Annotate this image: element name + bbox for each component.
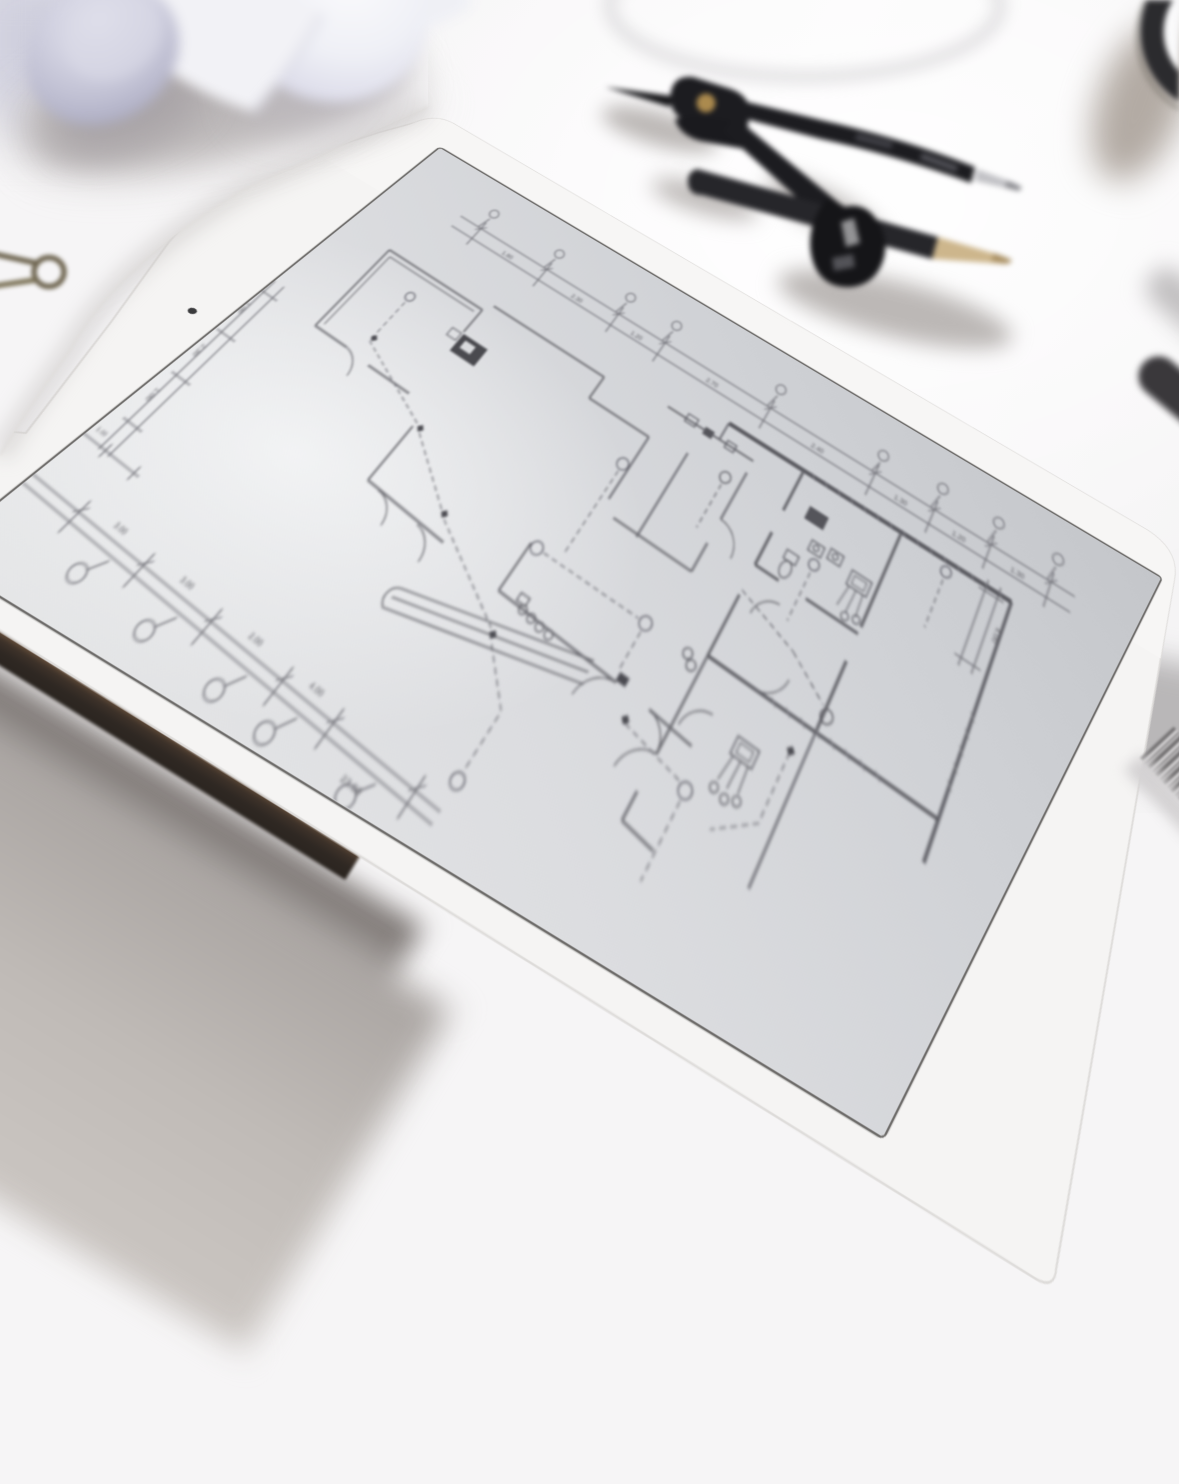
svg-text:4.00: 4.00: [306, 681, 326, 701]
svg-text:3.00: 3.00: [177, 576, 196, 594]
svg-text:2.00: 2.00: [245, 632, 265, 651]
svg-text:23.00: 23.00: [337, 772, 364, 800]
svg-text:3.00: 3.00: [111, 521, 130, 538]
